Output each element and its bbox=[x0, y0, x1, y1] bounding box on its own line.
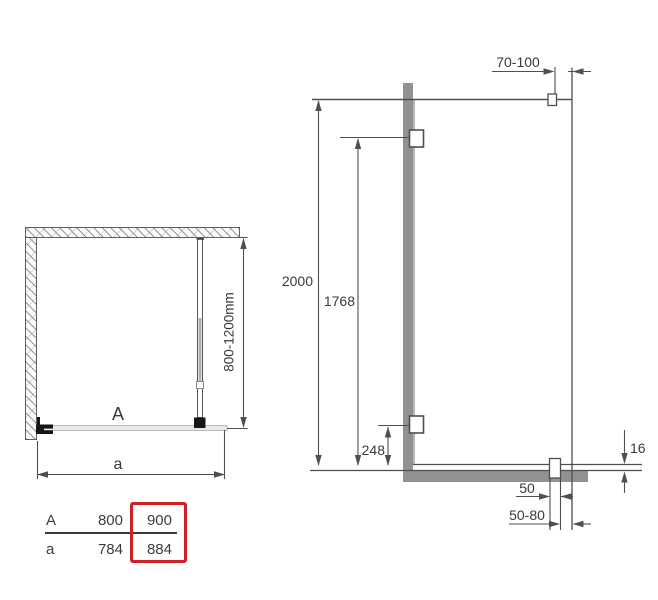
elevation-lower-hinge-label: 248 bbox=[362, 442, 386, 458]
elevation-glass-panel bbox=[310, 68, 642, 531]
elevation-total-height-label: 2000 bbox=[282, 273, 313, 289]
arrow-down bbox=[621, 453, 627, 464]
arrow-up bbox=[385, 427, 391, 438]
elevation-upper-hinge bbox=[410, 130, 424, 147]
arrow-up bbox=[355, 138, 361, 149]
plan-dim-a bbox=[37, 430, 225, 479]
arrow-up bbox=[315, 100, 321, 111]
elevation-lower-hinge bbox=[410, 416, 424, 433]
arrow-left bbox=[573, 68, 584, 74]
elevation-thickness-label: 16 bbox=[630, 440, 646, 456]
elevation-dim-total-height bbox=[315, 100, 321, 466]
elevation-bar-offset-label: 70-100 bbox=[496, 54, 540, 70]
elevation-upper-hinge-label: 1768 bbox=[324, 293, 355, 309]
plan-support-bar-range-label: 800-1200mm bbox=[222, 292, 237, 372]
elevation-dim-thickness bbox=[621, 430, 627, 493]
arrow-down bbox=[240, 417, 246, 428]
selected-size-highlight-box bbox=[130, 502, 187, 563]
plan-wall-bracket bbox=[36, 417, 53, 434]
size-table-row-a-label: A bbox=[46, 512, 60, 530]
elevation-bracket-offset-label: 50-80 bbox=[509, 507, 545, 523]
size-table-row-b-standard: 784 bbox=[88, 541, 123, 559]
arrow-left bbox=[37, 471, 48, 477]
arrow-down bbox=[385, 455, 391, 466]
plan-panel-label: A bbox=[112, 404, 124, 424]
elevation-bottom-bracket bbox=[550, 459, 561, 479]
arrow-left bbox=[561, 493, 572, 499]
arrow-up bbox=[621, 472, 627, 483]
arrow-left bbox=[573, 521, 584, 527]
plan-view bbox=[36, 238, 248, 480]
plan-width-label: a bbox=[114, 456, 123, 473]
arrow-right bbox=[214, 471, 225, 477]
technical-drawing-page: A a 800-1200mm bbox=[0, 0, 658, 600]
plan-support-bar bbox=[194, 239, 206, 429]
arrow-right bbox=[539, 493, 550, 499]
arrow-up bbox=[240, 238, 246, 249]
size-table-row-b-label: a bbox=[46, 541, 60, 559]
arrow-right bbox=[549, 521, 560, 527]
arrow-down bbox=[355, 455, 361, 466]
drawing-canvas: A a 800-1200mm bbox=[0, 0, 658, 600]
elevation-support-bar-wall-mount bbox=[548, 94, 557, 106]
plan-bar-glass-clamp bbox=[194, 418, 206, 429]
arrow-right bbox=[544, 68, 555, 74]
elevation-bracket-width-label: 50 bbox=[519, 480, 535, 496]
size-table-row-a-standard: 800 bbox=[88, 512, 123, 530]
elevation-view bbox=[310, 67, 642, 530]
elevation-dim-bar-offset bbox=[492, 67, 591, 94]
arrow-down bbox=[315, 455, 321, 466]
